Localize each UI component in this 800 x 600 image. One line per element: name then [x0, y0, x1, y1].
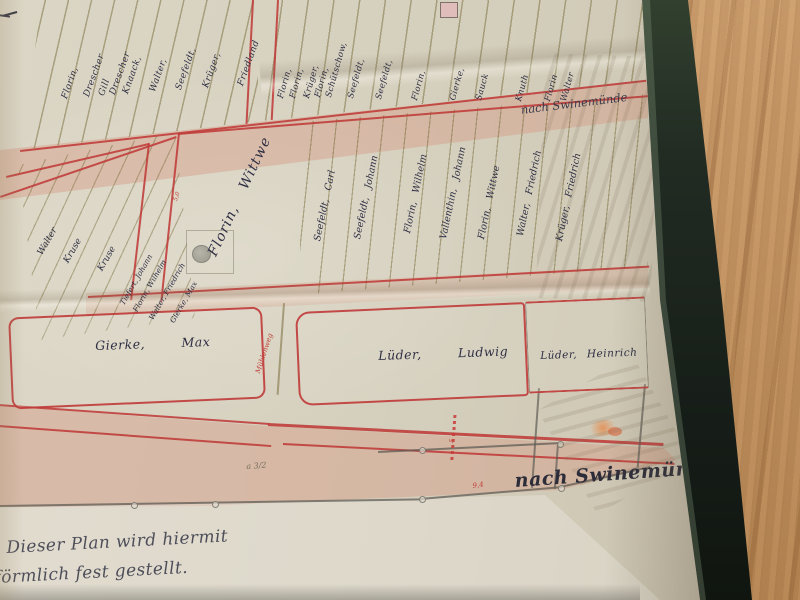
strip-divider-line	[277, 303, 285, 395]
building-footprint-icon	[440, 2, 458, 18]
photo-of-cadastral-map: Florin, Drescher Gill Drescher Knaack, W…	[0, 0, 800, 600]
survey-node	[212, 501, 219, 508]
measure-annotation-red: 9,4	[472, 480, 484, 489]
corner-ink-mark	[0, 14, 10, 17]
paper-bottom-shadow	[0, 584, 640, 600]
survey-node	[419, 496, 426, 503]
parcel-gierke-max	[8, 307, 266, 410]
pencil-annotation: a 3/2	[246, 461, 267, 471]
survey-node	[419, 447, 426, 454]
survey-node	[131, 502, 138, 509]
